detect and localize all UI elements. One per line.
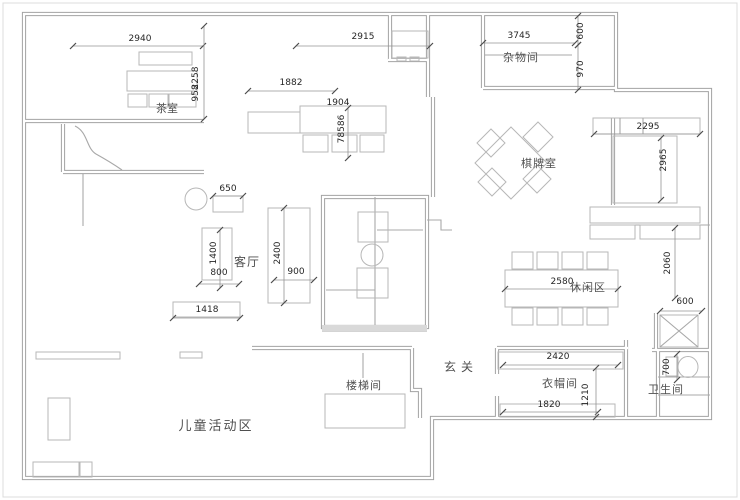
dim-1904: 1904 xyxy=(327,98,350,108)
dim-2295: 2295 xyxy=(637,122,660,132)
wing-bench xyxy=(590,207,700,223)
dim-900: 900 xyxy=(287,267,304,277)
toilet-bowl xyxy=(678,357,698,378)
leisure-chair xyxy=(562,252,583,269)
core-band xyxy=(322,325,427,331)
dim-2400: 2400 xyxy=(273,241,283,264)
core-notch xyxy=(427,220,452,230)
stair-flight xyxy=(325,394,405,428)
leisure-chair xyxy=(587,252,608,269)
kids-cabinet xyxy=(48,398,70,440)
dim-3745: 3745 xyxy=(508,31,531,41)
leisure-chair xyxy=(537,308,558,325)
dim-700: 700 xyxy=(662,358,672,375)
wall-tab xyxy=(36,352,120,359)
dim-958: 958 xyxy=(191,84,201,101)
dim-650: 650 xyxy=(219,184,236,194)
side-table xyxy=(185,188,207,210)
leisure-chair xyxy=(512,252,533,269)
kitchen-counter xyxy=(392,31,428,58)
dim-1418: 1418 xyxy=(196,305,219,315)
dim-1820: 1820 xyxy=(538,400,561,410)
curved-partition xyxy=(75,126,122,170)
wing-bench xyxy=(640,225,700,239)
dim-1210: 1210 xyxy=(581,383,591,406)
tea-cabinet xyxy=(139,52,192,65)
room-label-tea-room: 茶室 xyxy=(156,101,178,115)
dining-chair xyxy=(303,135,328,152)
kids-cabinet xyxy=(33,462,79,477)
floor-plan-canvas: 2940225895829153745600970188219047858622… xyxy=(0,0,740,500)
room-label-stairwell: 楼梯间 xyxy=(346,378,382,392)
room-label-entry: 玄关 xyxy=(444,359,478,374)
room-label-bathroom: 卫生间 xyxy=(648,382,684,396)
leisure-chair xyxy=(562,308,583,325)
leisure-chair xyxy=(512,308,533,325)
dim-2420: 2420 xyxy=(547,352,570,362)
dim-1882: 1882 xyxy=(280,78,303,88)
room-label-leisure-area: 休闲区 xyxy=(570,280,606,294)
dim-970: 970 xyxy=(576,60,586,77)
tea-stool xyxy=(128,94,147,107)
floor-plan-page: 2940225895829153745600970188219047858622… xyxy=(0,0,740,500)
room-label-kids-area: 儿童活动区 xyxy=(178,418,253,434)
wall-tab xyxy=(180,352,202,358)
dim-2060: 2060 xyxy=(663,251,673,274)
cabinet-650 xyxy=(213,196,243,212)
sideboard xyxy=(248,112,300,133)
room-labels-layer: 茶室杂物间棋牌室客厅休闲区玄关楼梯间衣帽间卫生间儿童活动区 xyxy=(156,50,684,434)
leisure-chair xyxy=(587,308,608,325)
room-label-cloakroom: 衣帽间 xyxy=(542,376,578,390)
kids-cabinet xyxy=(80,462,92,477)
dim-600-top: 600 xyxy=(576,22,586,39)
room-label-storage-room: 杂物间 xyxy=(503,50,539,64)
dim-2965: 2965 xyxy=(659,149,669,172)
burner xyxy=(410,57,419,61)
dim-1400: 1400 xyxy=(209,241,219,264)
core-square xyxy=(358,212,388,242)
room-label-living-room: 客厅 xyxy=(234,254,260,269)
room-label-chess-room: 棋牌室 xyxy=(521,156,557,170)
dim-800: 800 xyxy=(210,268,227,278)
burner xyxy=(397,57,406,61)
dim-600-shaft: 600 xyxy=(676,297,693,307)
tea-table xyxy=(127,71,197,91)
core-circle xyxy=(361,244,383,266)
leisure-chair xyxy=(537,252,558,269)
core-square xyxy=(357,268,388,298)
wing-bench xyxy=(590,225,635,239)
dining-chair xyxy=(360,135,384,152)
dim-2915: 2915 xyxy=(352,32,375,42)
dim-78586: 78586 xyxy=(337,114,347,143)
dim-2940: 2940 xyxy=(129,34,152,44)
